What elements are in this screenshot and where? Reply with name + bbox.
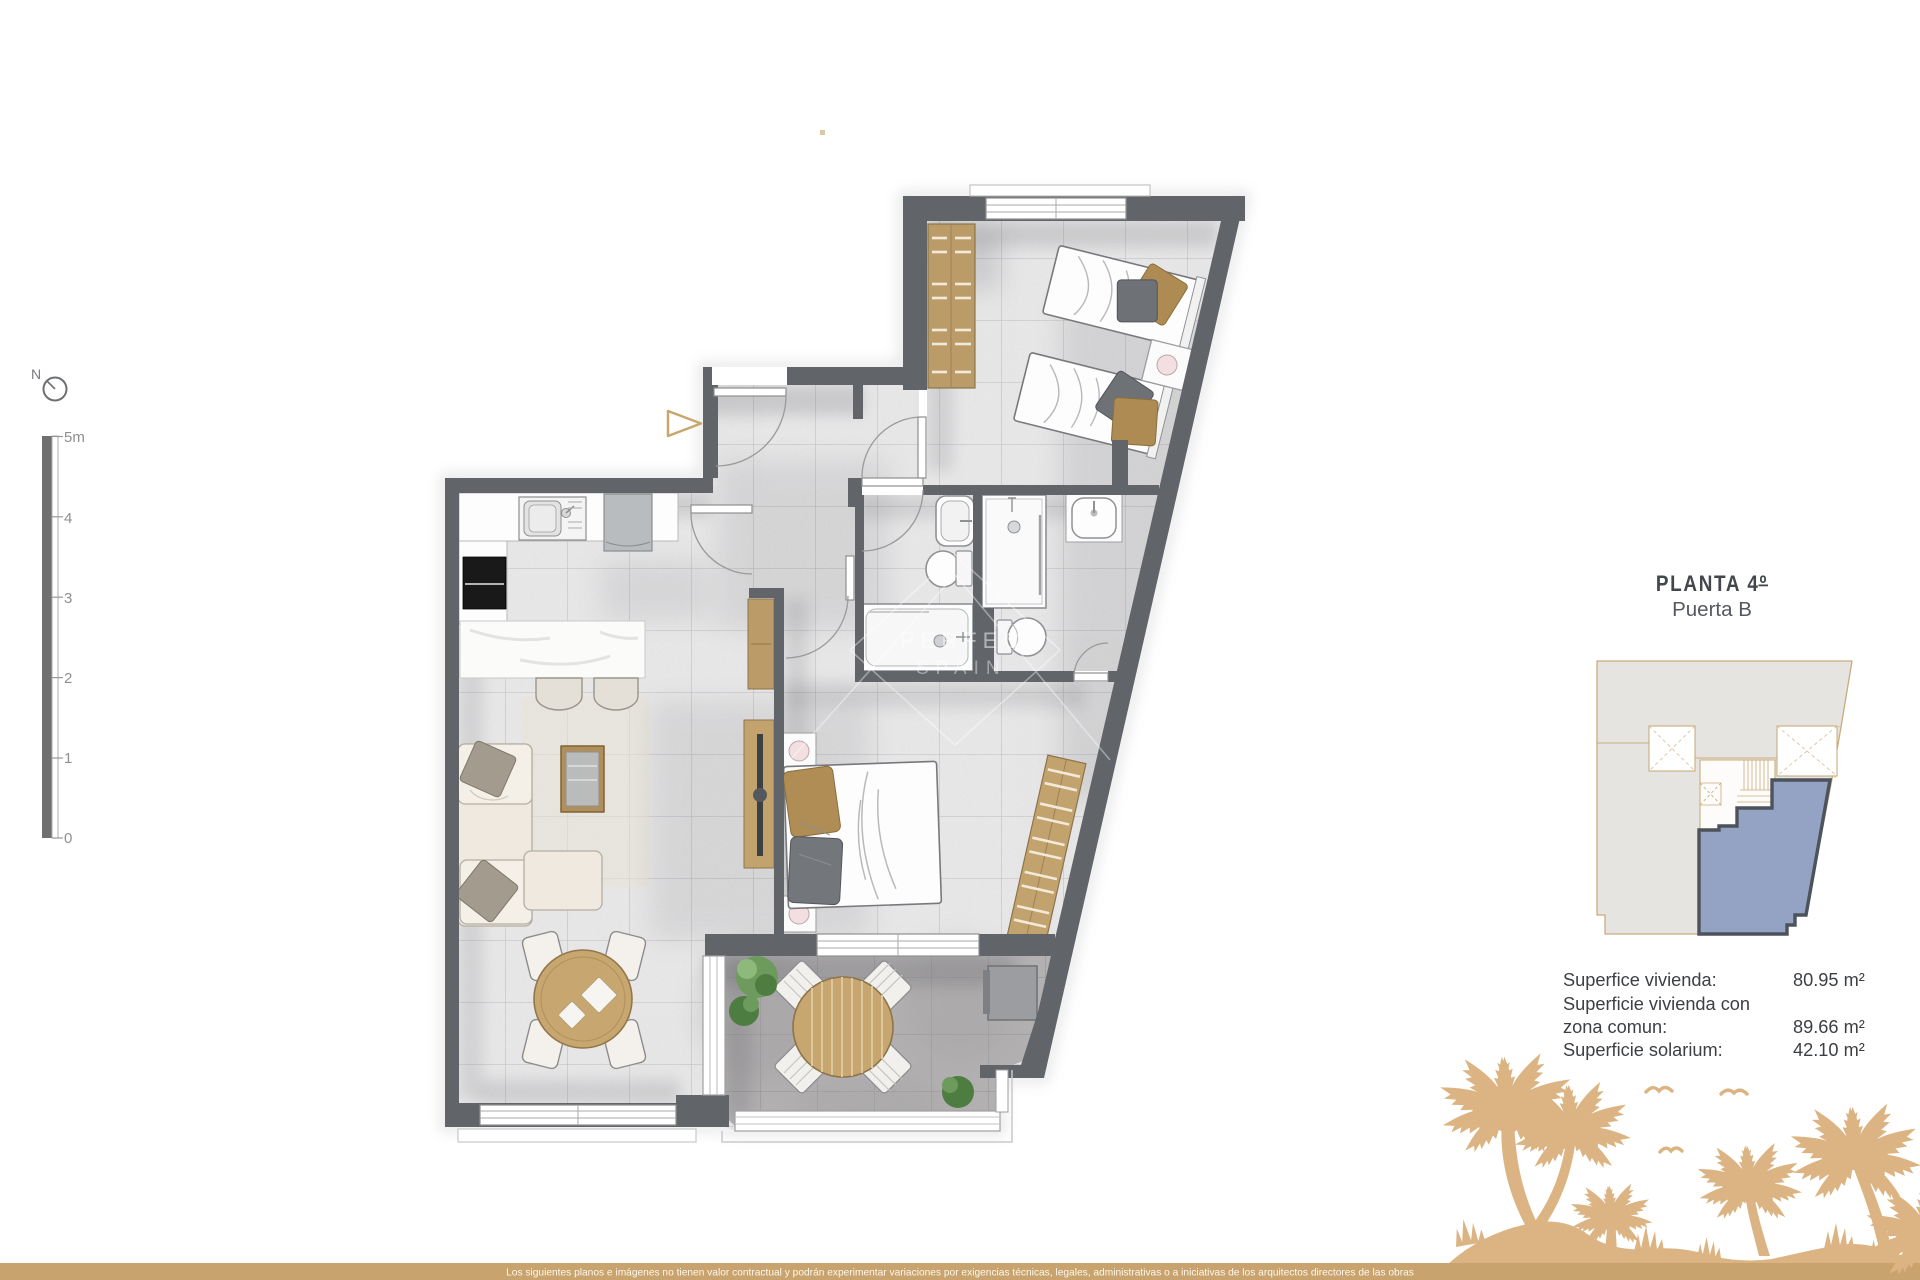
svg-text:Superficie vivienda con: Superficie vivienda con [1563,994,1750,1014]
svg-text:SPAIN: SPAIN [916,658,1007,679]
svg-text:42.10 m²: 42.10 m² [1793,1040,1865,1060]
svg-text:N: N [31,366,41,382]
svg-text:Superficie solarium:: Superficie solarium: [1563,1040,1723,1060]
svg-text:Superfice vivienda:: Superfice vivienda: [1563,970,1717,990]
svg-text:zona comun:: zona comun: [1563,1017,1667,1037]
svg-text:Los siguientes planos e imágen: Los siguientes planos e imágenes no tien… [506,1268,1414,1279]
svg-text:2: 2 [64,670,72,687]
svg-text:0: 0 [64,830,72,847]
svg-text:4: 4 [64,510,72,527]
svg-text:3: 3 [64,590,72,607]
svg-text:Puerta B: Puerta B [1672,598,1752,621]
svg-text:5m: 5m [64,429,85,446]
svg-text:PLANTA 4º: PLANTA 4º [1656,572,1768,597]
svg-text:89.66 m²: 89.66 m² [1793,1017,1865,1037]
svg-text:1: 1 [64,750,72,767]
svg-text:PERFECT: PERFECT [900,628,1045,653]
svg-text:80.95 m²: 80.95 m² [1793,970,1865,990]
